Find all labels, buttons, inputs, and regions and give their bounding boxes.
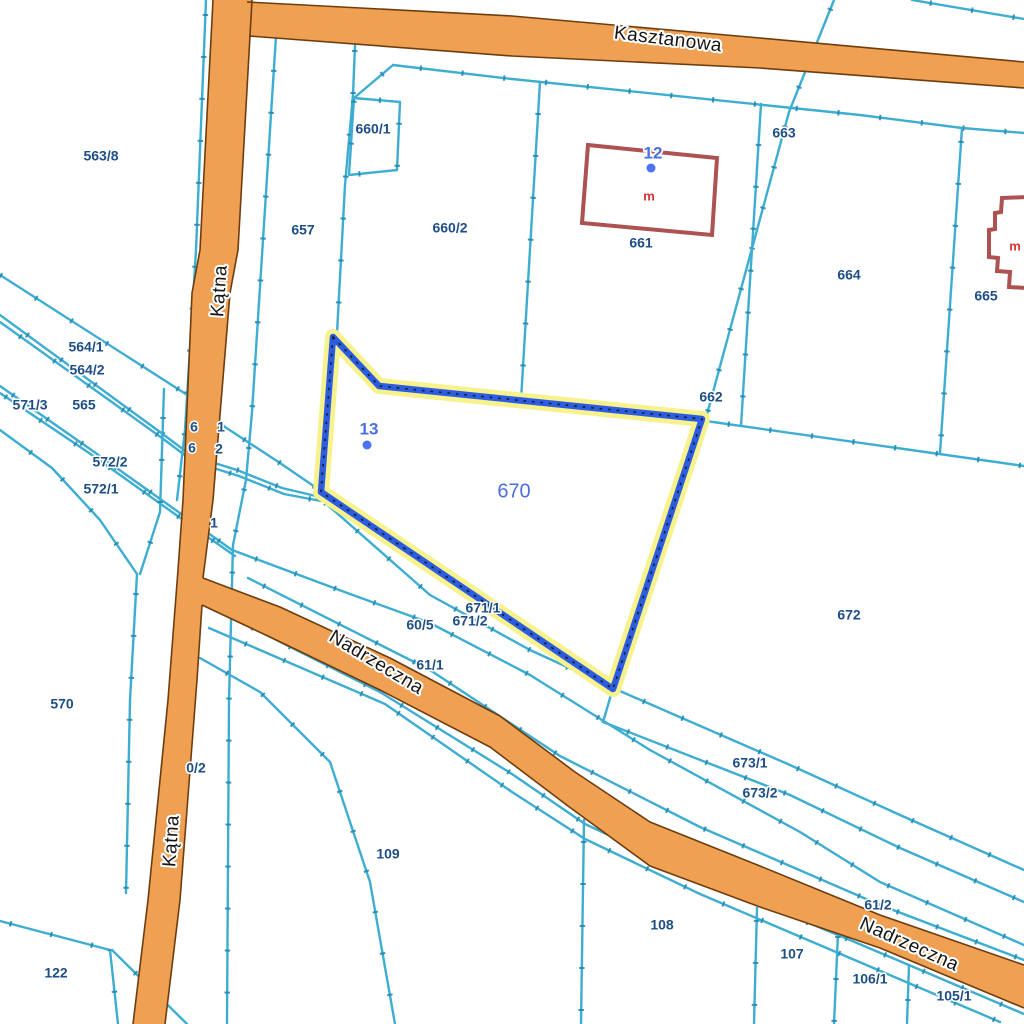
parcel-label-partial: 1 xyxy=(210,515,218,531)
parcel-label-107: 107 xyxy=(780,946,804,962)
parcel-label-660-1: 660/1 xyxy=(355,121,390,137)
parcel-label-109: 109 xyxy=(376,846,400,862)
parcel-label-663: 663 xyxy=(772,125,796,141)
parcel-label-105-1: 105/1 xyxy=(936,988,971,1004)
parcel-label-565: 565 xyxy=(72,397,96,413)
parcel-label-partial: 6 xyxy=(188,440,196,456)
parcel-label-60-5: 60/5 xyxy=(406,617,433,633)
parcel-label-673-1: 673/1 xyxy=(732,755,767,771)
parcel-label-660-2: 660/2 xyxy=(432,220,467,236)
parcel-label-571-3: 571/3 xyxy=(12,397,47,413)
address-point-dot-12 xyxy=(647,164,656,173)
parcel-label-572-1: 572/1 xyxy=(83,481,118,497)
parcel-label-563-8: 563/8 xyxy=(83,148,118,164)
parcel-label-661: 661 xyxy=(629,235,653,251)
parcel-label-564-2: 564/2 xyxy=(69,362,104,378)
building-usage-label: m xyxy=(643,188,655,203)
address-point-label-13: 13 xyxy=(360,419,379,438)
street-label-katna: Kątna xyxy=(207,264,232,317)
building-usage-label: m xyxy=(1009,238,1021,253)
street-label-katna: Kątna xyxy=(159,814,184,867)
parcel-label-partial: 6 xyxy=(190,419,198,435)
parcel-label-61-2: 61/2 xyxy=(864,897,891,913)
parcel-label-672: 672 xyxy=(837,607,861,623)
parcel-label-673-2: 673/2 xyxy=(742,785,777,801)
cadastral-map-canvas[interactable]: 563/8660/1657660/2663661664665564/1564/2… xyxy=(0,0,1024,1024)
parcel-label-partial: 1 xyxy=(217,419,225,435)
parcel-label-671-2: 671/2 xyxy=(452,613,487,629)
address-point-dot-13 xyxy=(363,441,372,450)
cadastral-map: 563/8660/1657660/2663661664665564/1564/2… xyxy=(0,0,1024,1024)
parcel-label-564-1: 564/1 xyxy=(68,339,103,355)
parcel-label-572-2: 572/2 xyxy=(92,454,127,470)
parcel-label-partial: 0/2 xyxy=(186,760,206,776)
parcel-label-662: 662 xyxy=(699,389,723,405)
parcel-label-106-1: 106/1 xyxy=(852,971,887,987)
parcel-label-61-1: 61/1 xyxy=(416,657,443,673)
parcel-label-108: 108 xyxy=(650,917,674,933)
parcel-label-665: 665 xyxy=(974,288,998,304)
address-point-label-12: 12 xyxy=(644,143,663,162)
highlighted-parcel-number: 670 xyxy=(497,480,530,502)
parcel-label-122: 122 xyxy=(44,965,68,981)
parcel-label-570: 570 xyxy=(50,696,74,712)
parcel-label-664: 664 xyxy=(837,267,861,283)
parcel-label-partial: 2 xyxy=(215,441,223,457)
parcel-label-657: 657 xyxy=(291,222,315,238)
